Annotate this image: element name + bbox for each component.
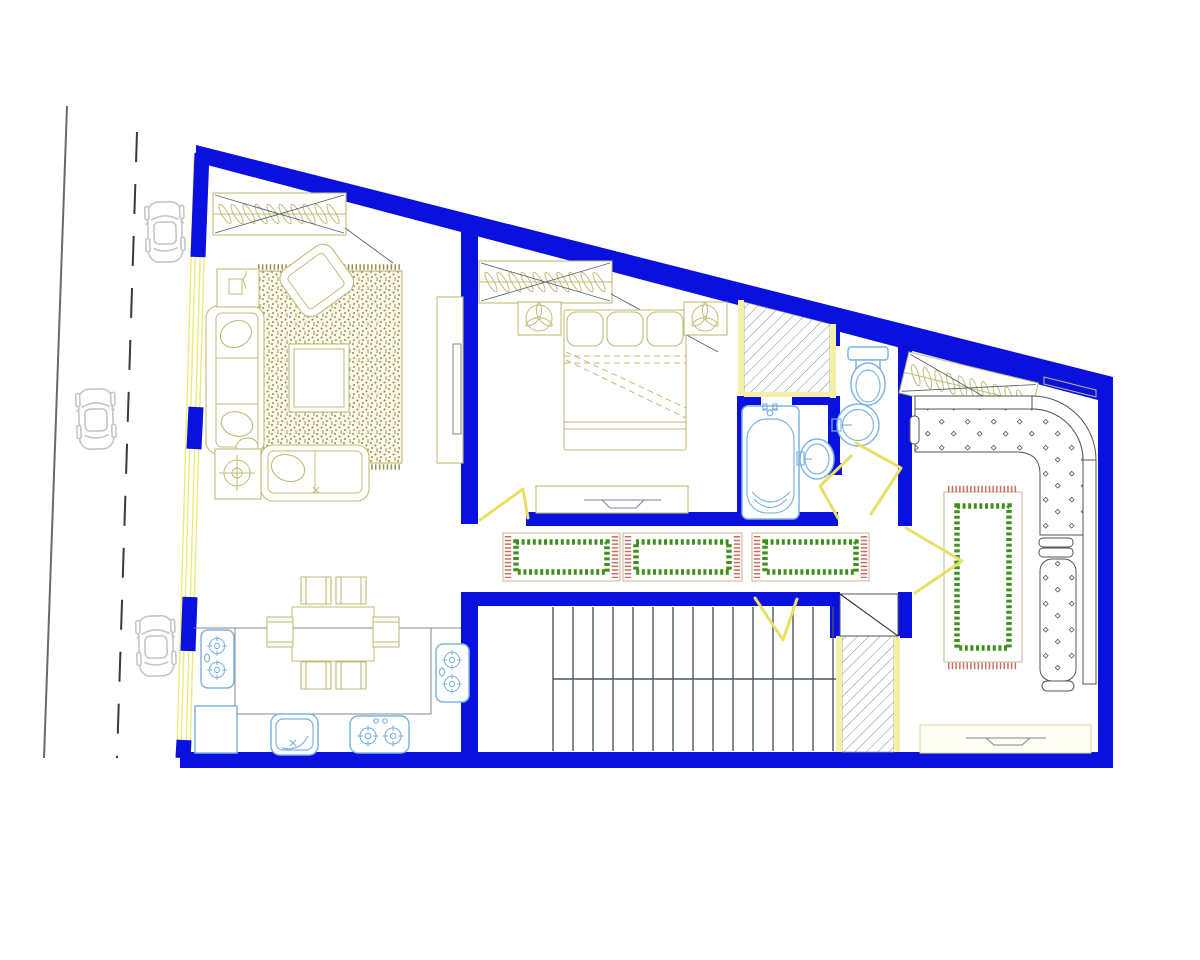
left-wall-pier (183, 740, 184, 758)
sofa-backrest (1083, 460, 1096, 684)
wc (832, 347, 888, 446)
side-table-lamp (215, 449, 261, 499)
dining-table (292, 607, 374, 661)
bathtub (742, 404, 799, 519)
floor-plan-canvas (0, 0, 1200, 960)
dining-chair (301, 577, 331, 604)
street (44, 106, 186, 758)
tv-unit (437, 297, 463, 463)
lounge (899, 352, 1096, 753)
bedroom (479, 261, 727, 513)
wc-door-swing (856, 443, 901, 514)
dining-chair (336, 662, 366, 689)
bathroom-top-wall-pier (747, 396, 761, 405)
bathroom-washbasin (797, 439, 834, 479)
dining-chair (373, 617, 399, 647)
double-bed (564, 310, 686, 450)
sofa-armrest (1042, 681, 1074, 691)
sofa-armrest (910, 416, 919, 444)
floor-plan-page (0, 0, 1200, 960)
runner-rug (503, 533, 620, 581)
parked-car-icon (135, 615, 176, 676)
pillow (567, 312, 603, 346)
sofa-backrest (915, 396, 1032, 409)
runner-rug (623, 533, 742, 581)
shaft-border (894, 636, 900, 752)
parked-car-icon (144, 201, 185, 262)
coffee-table (289, 344, 349, 412)
pillow (607, 312, 643, 346)
nightstand-fan-icon (684, 302, 727, 335)
cooktop-left (201, 630, 234, 688)
hatched-shaft-area (842, 636, 894, 752)
toilet (848, 347, 888, 405)
shaft-by-stairs (836, 594, 900, 752)
closet-hangers-icon (213, 193, 346, 235)
cooktop-bottom (350, 716, 409, 753)
shaft-border (830, 324, 836, 398)
kitchen-sink (271, 714, 318, 755)
ornate-rug (944, 489, 1022, 666)
right-wall (1098, 378, 1113, 768)
closet-diagonal (345, 228, 393, 263)
loveseat (261, 445, 369, 501)
three-seat-sofa (206, 306, 264, 458)
dining-chair (336, 577, 366, 604)
closet-hangers-icon (479, 261, 612, 303)
tv-console (920, 725, 1091, 753)
stairwell-top-wall (461, 592, 838, 606)
left-wall-pier (198, 153, 202, 257)
sofa-armrest (1039, 538, 1073, 547)
left-wall-pier (194, 407, 196, 449)
bathroom-top-wall-pier (792, 396, 832, 405)
side-table-top (217, 269, 259, 307)
cooktop-right (436, 644, 469, 702)
shaft-border (836, 636, 842, 752)
kitchen-dining (194, 577, 469, 755)
parked-car-icon (75, 388, 116, 449)
shaft-border (738, 300, 744, 396)
street-center-dashed-line (117, 132, 137, 758)
lounge-left-wall-lower (898, 592, 912, 638)
bathroom (742, 404, 834, 519)
pillow (647, 312, 683, 346)
bedroom-door-swing (480, 489, 528, 520)
staircase (553, 607, 836, 751)
dining-chair (301, 662, 331, 689)
runner-rug (752, 533, 869, 581)
left-wall-pier (188, 597, 190, 651)
nightstand-fan-icon (518, 302, 561, 335)
island-counter (235, 628, 431, 714)
sofa-armrest (1039, 548, 1073, 557)
shaft-border (744, 392, 832, 397)
dresser-tv (536, 486, 688, 513)
dining-chair (267, 617, 293, 647)
bottom-wall (180, 752, 1113, 768)
hallway-rugs (503, 533, 869, 581)
kitchen-appliance (195, 706, 237, 753)
street-edge-line (44, 106, 67, 758)
living-room (206, 193, 463, 501)
